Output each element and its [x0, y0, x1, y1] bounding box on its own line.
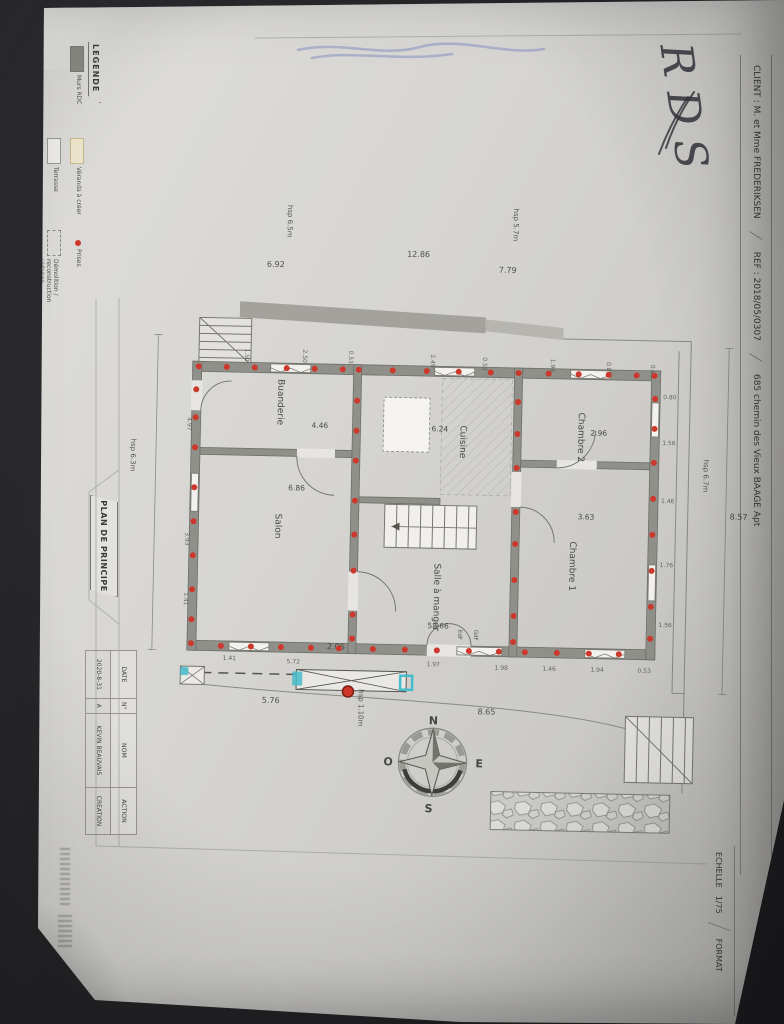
col-nom: NOM [111, 713, 137, 787]
outlet-dot [649, 568, 655, 574]
wall-dimension: 0.53 [637, 668, 651, 675]
table-row: 2020-8-31 A KEVIN BEAUVAIS CREATION [86, 651, 112, 835]
outlet-dot [652, 396, 658, 402]
height-annotation: hsp 6.5m [285, 205, 294, 238]
outlet-dot [190, 518, 196, 524]
height-annotation: GdF [472, 630, 478, 641]
dimension: 5.76 [262, 696, 280, 705]
shadow [0, 900, 140, 1024]
outlet-dot [351, 532, 357, 538]
wall-dimension: 0.53 [347, 350, 354, 364]
outlet-dot [514, 431, 520, 437]
compass-rose: N S E O [382, 713, 484, 816]
dimension: 6.92 [267, 260, 285, 269]
outlet-dot [196, 363, 202, 369]
outlet-dot [312, 366, 318, 372]
legend-item-murs-rdc: Murs RDC [70, 46, 84, 104]
sheet-frame [89, 34, 742, 864]
dimension: 8.57 [730, 512, 748, 521]
existing-wall-band [485, 319, 563, 340]
outlet-dot [188, 640, 194, 646]
table-header-row: DATE N° NOM ACTION [111, 651, 137, 835]
outlet-dot [434, 647, 440, 653]
wall-swatch [70, 46, 84, 72]
outlet-dot [353, 458, 359, 464]
compass-star-shading [432, 729, 466, 770]
height-annotation: hsp 6.3m [129, 439, 138, 472]
wall-dimension: 1.94 [590, 667, 604, 674]
outlet-dot [647, 636, 653, 642]
wall-dimension: 4.97 [185, 417, 192, 431]
format-label: FORMAT [715, 939, 724, 972]
outlet-dot [356, 367, 362, 373]
wall-dimension: 1.46 [542, 666, 556, 673]
separator: / [747, 352, 765, 363]
cell-date: 2020-8-31 [86, 651, 112, 699]
wall-dimension: 1.56 [662, 440, 676, 447]
outlet-dot [349, 636, 355, 642]
outlet-dot [190, 552, 196, 558]
wall-dimension: 1.97 [426, 661, 440, 668]
handwriting-underline [659, 92, 694, 154]
outlet-dot [648, 604, 654, 610]
dimension-lines [147, 334, 733, 694]
outlet-dot [308, 645, 314, 651]
photo-of-floor-plan: LEGENDE Murs RDC Véranda à créer Prises [0, 0, 784, 1024]
outlet-dot [424, 368, 430, 374]
room-area: 52.66 [427, 621, 449, 630]
col-action: ACTION [111, 788, 137, 835]
dimension: 12.86 [407, 250, 430, 259]
outlet-dot [248, 643, 254, 649]
outlet-dot [522, 649, 528, 655]
wall-dimension: 1.98 [494, 665, 508, 672]
col-date: DATE [111, 651, 137, 699]
wall-dimension: 2.50 [301, 349, 308, 363]
red-target-symbol [342, 686, 353, 697]
outlet-dot [353, 428, 359, 434]
outlet-dot-swatch [75, 240, 81, 246]
room-label: Salle à manger [430, 563, 441, 631]
outlet-dot [224, 364, 230, 370]
outlet-dot [510, 639, 516, 645]
outlet-dot [634, 372, 640, 378]
outlet-dot [650, 496, 656, 502]
outlet-dot [515, 399, 521, 405]
wall-dimension: 1.41 [223, 655, 237, 662]
outlet-dot [652, 373, 658, 379]
outlet-dot [514, 465, 520, 471]
outlet-dot [218, 643, 224, 649]
room-label: Buanderie [275, 379, 286, 426]
outlet-dot [192, 444, 198, 450]
legend-item-prises: Prises [74, 240, 84, 267]
outlet-dot [511, 577, 517, 583]
wall-dimension: 1.96 [549, 359, 556, 373]
wall-dimension: 2.49 [429, 354, 436, 368]
outlet-dot [513, 509, 519, 515]
address: 685 chemin des Vieux BAAGE Apt [751, 374, 761, 526]
paper-corner-fold [30, 0, 140, 70]
separator: / [747, 230, 765, 241]
outlet-dot [511, 613, 517, 619]
outlet-dot [352, 498, 358, 504]
col-num: N° [111, 698, 137, 713]
wall-dimension: 0.90 [649, 365, 656, 379]
company-info-illegible [60, 848, 70, 906]
outlet-dot [350, 568, 356, 574]
height-annotation: hsp 1.10m [356, 689, 365, 726]
client-name: CLIENT : M. et Mme FREDERIKSEN [751, 65, 761, 219]
room-label: Cuisine [457, 425, 468, 459]
wall-dimension: 0.80 [663, 394, 677, 401]
dimension: 7.79 [499, 266, 517, 275]
scale-label: ECHELLE [715, 852, 724, 888]
interior-stairs [384, 504, 477, 549]
legend-item-demolition: Démolition / reconstruction vidange [37, 230, 61, 310]
room-area: 6.86 [288, 483, 305, 492]
outlet-dot [193, 386, 199, 392]
outlet-dot [554, 650, 560, 656]
wall-dimension: 1.41 [182, 592, 189, 606]
wall-dimension: 5.72 [287, 658, 301, 665]
outlet-dot [488, 369, 494, 375]
cyan-marker [292, 671, 302, 685]
compass-north: N [429, 714, 438, 727]
outlet-dot [649, 532, 655, 538]
cyan-marker [400, 676, 412, 690]
wall-dimension: 1.56 [658, 622, 672, 629]
room-label: Chambre 1 [566, 541, 577, 591]
scale-strip: ECHELLE 1/75 FORMAT [704, 846, 735, 1016]
outlet-dot [606, 372, 612, 378]
drawing-title: PLAN DE PRINCIPE [90, 495, 118, 597]
door-openings [186, 380, 599, 659]
scale-value: 1/75 [715, 896, 724, 914]
stone-wall [490, 792, 670, 834]
legend: LEGENDE Murs RDC Véranda à créer Prises [38, 42, 108, 310]
outlet-dot [466, 648, 472, 654]
outlet-dot [516, 370, 522, 376]
outlet-dot [586, 651, 592, 657]
hatched-area [440, 378, 512, 495]
outlet-dot [193, 414, 199, 420]
cell-nom: KEVIN BEAUVAIS [86, 713, 112, 787]
outlet-dot [616, 651, 622, 657]
terrace-stairs [624, 716, 693, 783]
paper-sheet: LEGENDE Murs RDC Véranda à créer Prises [0, 0, 784, 1024]
blue-pencil-scribble [298, 44, 544, 58]
revision-table: DATE N° NOM ACTION 2020-8-31 A KEVIN BEA… [85, 650, 137, 835]
outlet-dot [336, 645, 342, 651]
outlet-dot [350, 612, 356, 618]
outlet-dot [546, 371, 552, 377]
dimension: 8.65 [477, 707, 495, 716]
outlet-dot [252, 364, 258, 370]
compass-south: S [424, 802, 432, 815]
outlet-dot [512, 541, 518, 547]
dimension: 2.06 [327, 642, 345, 651]
outlet-dot [651, 460, 657, 466]
outlet-dot [496, 649, 502, 655]
existing-wall-band [240, 301, 487, 333]
outlet-dot [188, 616, 194, 622]
outlet-dot [370, 646, 376, 652]
legend-title: LEGENDE [88, 42, 101, 103]
outlet-dot [191, 484, 197, 490]
wall-dimension: 3.93 [183, 532, 190, 546]
legend-row: Terrasse Démolition / reconstruction vid… [38, 42, 63, 310]
height-annotation: hsp 6.7m [701, 460, 710, 493]
terrace-swatch [47, 138, 61, 164]
wall-dimension: 1.46 [661, 498, 675, 505]
wall-dimension: 1.50 [243, 348, 250, 362]
wall-dimension: 0.80 [605, 362, 612, 376]
demolition-dashed-line [201, 672, 351, 675]
veranda-swatch [70, 138, 84, 164]
outlet-dot [278, 644, 284, 650]
handwritten-floor-note: RDS [649, 40, 719, 186]
dashed-fixture [383, 397, 430, 452]
outlet-dot [390, 367, 396, 373]
cell-num: A [86, 698, 112, 713]
title-strip: CLIENT : M. et Mme FREDERIKSEN / REF : 2… [740, 55, 772, 875]
height-annotation: hsp 5.7m [511, 209, 520, 242]
door-arcs [196, 380, 596, 648]
cyan-marker [180, 667, 188, 675]
floor-plan-drawing: N S E O Buanderie4.46Salon6.86Cuisine6.2… [0, 0, 784, 1024]
outlet-dot [284, 365, 290, 371]
room-label: Salon [272, 513, 283, 538]
exterior-stairs [199, 317, 252, 364]
divider [708, 922, 730, 931]
windows [188, 362, 660, 659]
outlet-dot [189, 586, 195, 592]
compass-star [399, 729, 466, 796]
company-info-illegible [58, 915, 72, 949]
reference: REF : 2018/05/0307 [751, 252, 761, 341]
legend-row: Murs RDC Véranda à créer Prises [63, 42, 88, 310]
legend-item-veranda: Véranda à créer [70, 138, 84, 215]
room-area: 2.96 [590, 429, 607, 438]
outlet-dot [651, 426, 657, 432]
wall-dimension: 0.53 [481, 357, 488, 371]
beam-element [180, 666, 413, 698]
room-label: Chambre 2 [575, 412, 586, 462]
building-walls [187, 361, 661, 660]
cell-action: CREATION [86, 788, 112, 835]
room-area: 6.24 [431, 424, 448, 433]
wall-dimension: 1.76 [660, 562, 674, 569]
compass-west: O [383, 755, 393, 768]
compass-east: E [475, 757, 483, 770]
demolition-swatch [47, 230, 61, 256]
outlet-dot [340, 366, 346, 372]
outlet-dot [354, 398, 360, 404]
room-area: 3.63 [578, 512, 595, 521]
outlet-dot [576, 371, 582, 377]
terrace-outline [190, 331, 701, 793]
room-area: 4.46 [311, 421, 328, 430]
outlet-dot [402, 647, 408, 653]
height-annotation: EdF [456, 630, 462, 640]
legend-item-terrasse: Terrasse [47, 138, 61, 192]
compass-arc [404, 769, 460, 792]
plan-labels-layer: Buanderie4.46Salon6.86Cuisine6.24Chambre… [123, 201, 754, 735]
outlet-dot [456, 369, 462, 375]
